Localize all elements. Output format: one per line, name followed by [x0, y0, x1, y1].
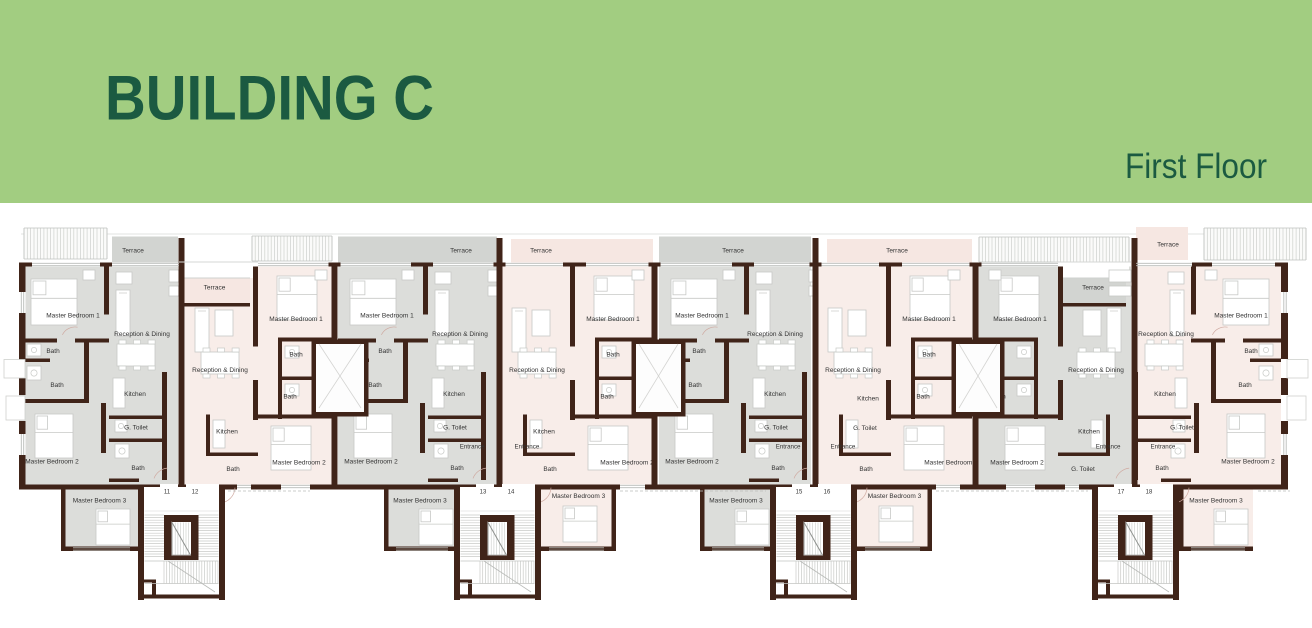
svg-text:Terrace: Terrace — [886, 248, 908, 255]
svg-text:Reception & Dining: Reception & Dining — [825, 367, 881, 374]
svg-text:Reception & Dining: Reception & Dining — [114, 331, 170, 338]
svg-text:Bath: Bath — [859, 466, 873, 473]
svg-text:13: 13 — [480, 490, 487, 496]
svg-text:Bath: Bath — [1238, 382, 1252, 389]
svg-text:14: 14 — [508, 490, 515, 496]
svg-text:G. Toilet: G. Toilet — [124, 425, 148, 432]
svg-text:Bath: Bath — [916, 394, 930, 401]
svg-text:Reception & Dining: Reception & Dining — [1068, 367, 1124, 374]
svg-text:Bath: Bath — [368, 382, 382, 389]
svg-text:Kitchen: Kitchen — [1154, 391, 1176, 398]
svg-text:Master Bedroom 3: Master Bedroom 3 — [709, 498, 763, 505]
svg-text:Terrace: Terrace — [204, 285, 226, 292]
svg-text:Terrace: Terrace — [722, 248, 744, 255]
svg-text:First Floor: First Floor — [1125, 147, 1267, 186]
svg-text:Terrace: Terrace — [450, 248, 472, 255]
svg-text:15: 15 — [796, 490, 803, 496]
svg-text:Kitchen: Kitchen — [124, 391, 146, 398]
svg-text:Terrace: Terrace — [1157, 242, 1179, 249]
svg-text:Master Bedroom 2: Master Bedroom 2 — [272, 460, 326, 467]
svg-text:Master Bedroom 1: Master Bedroom 1 — [993, 316, 1047, 323]
svg-text:Master Bedroom 2: Master Bedroom 2 — [924, 460, 978, 467]
svg-text:Master Bedroom 2: Master Bedroom 2 — [344, 459, 398, 466]
svg-text:Bath: Bath — [922, 352, 936, 359]
svg-text:Entrance: Entrance — [1151, 444, 1176, 451]
svg-text:Master Bedroom 1: Master Bedroom 1 — [902, 316, 956, 323]
svg-text:Bath: Bath — [450, 465, 464, 472]
svg-text:Reception & Dining: Reception & Dining — [432, 331, 488, 338]
svg-text:12: 12 — [192, 490, 199, 496]
svg-text:Master Bedroom 2: Master Bedroom 2 — [600, 460, 654, 467]
svg-text:Bath: Bath — [692, 348, 706, 355]
svg-text:Bath: Bath — [131, 465, 145, 472]
svg-text:Entrance: Entrance — [776, 444, 801, 451]
svg-text:Master Bedroom 3: Master Bedroom 3 — [1189, 498, 1243, 505]
svg-text:Master Bedroom 1: Master Bedroom 1 — [269, 316, 323, 323]
svg-text:Entrance: Entrance — [1096, 444, 1121, 451]
svg-text:Bath: Bath — [226, 466, 240, 473]
svg-text:Kitchen: Kitchen — [857, 396, 879, 403]
svg-text:Master Bedroom 1: Master Bedroom 1 — [46, 313, 100, 320]
svg-text:Bath: Bath — [46, 348, 60, 355]
svg-text:Kitchen: Kitchen — [216, 429, 238, 436]
svg-text:Bath: Bath — [283, 394, 297, 401]
svg-text:Terrace: Terrace — [1082, 285, 1104, 292]
svg-text:Master Bedroom 1: Master Bedroom 1 — [360, 313, 414, 320]
svg-text:Bath: Bath — [606, 352, 620, 359]
svg-text:Bath: Bath — [600, 394, 614, 401]
svg-text:Kitchen: Kitchen — [1078, 429, 1100, 436]
svg-text:Terrace: Terrace — [530, 248, 552, 255]
svg-text:Master Bedroom 3: Master Bedroom 3 — [552, 493, 606, 500]
svg-text:Terrace: Terrace — [122, 248, 144, 255]
svg-text:Bath: Bath — [50, 382, 64, 389]
svg-text:G. Toilet: G. Toilet — [443, 425, 467, 432]
svg-text:17: 17 — [1118, 490, 1125, 496]
svg-text:Master Bedroom 3: Master Bedroom 3 — [73, 498, 127, 505]
svg-text:Master Bedroom 2: Master Bedroom 2 — [1221, 459, 1275, 466]
svg-text:Master Bedroom 1: Master Bedroom 1 — [1214, 313, 1268, 320]
svg-text:G. Toilet: G. Toilet — [764, 425, 788, 432]
svg-text:BUILDING C: BUILDING C — [105, 64, 434, 134]
svg-text:Reception & Dining: Reception & Dining — [509, 367, 565, 374]
svg-text:Reception & Dining: Reception & Dining — [747, 331, 803, 338]
svg-text:Master Bedroom 2: Master Bedroom 2 — [665, 459, 719, 466]
svg-text:Reception & Dining: Reception & Dining — [192, 367, 248, 374]
svg-text:Kitchen: Kitchen — [764, 391, 786, 398]
svg-text:Reception & Dining: Reception & Dining — [1138, 331, 1194, 338]
svg-text:Bath: Bath — [378, 348, 392, 355]
svg-text:Master Bedroom 2: Master Bedroom 2 — [990, 460, 1044, 467]
svg-text:Entrance: Entrance — [460, 444, 485, 451]
svg-text:G. Toilet: G. Toilet — [1170, 425, 1194, 432]
svg-text:G. Toilet: G. Toilet — [1071, 466, 1095, 473]
svg-text:Kitchen: Kitchen — [533, 429, 555, 436]
svg-text:Bath: Bath — [771, 465, 785, 472]
svg-text:16: 16 — [824, 490, 831, 496]
svg-text:Entrance: Entrance — [831, 444, 856, 451]
svg-text:Bath: Bath — [543, 466, 557, 473]
svg-text:Entrance: Entrance — [515, 444, 540, 451]
svg-text:Master Bedroom 1: Master Bedroom 1 — [586, 316, 640, 323]
svg-text:Master Bedroom 3: Master Bedroom 3 — [868, 493, 922, 500]
svg-text:Bath: Bath — [1244, 348, 1258, 355]
svg-text:Bath: Bath — [1155, 465, 1169, 472]
svg-text:Kitchen: Kitchen — [443, 391, 465, 398]
svg-text:18: 18 — [1146, 490, 1153, 496]
svg-text:Master Bedroom 1: Master Bedroom 1 — [675, 313, 729, 320]
svg-text:Master Bedroom 3: Master Bedroom 3 — [393, 498, 447, 505]
svg-text:11: 11 — [164, 490, 171, 496]
svg-text:Master Bedroom 2: Master Bedroom 2 — [25, 459, 79, 466]
svg-text:G. Toilet: G. Toilet — [853, 425, 877, 432]
svg-text:Bath: Bath — [688, 382, 702, 389]
svg-text:Bath: Bath — [289, 352, 303, 359]
